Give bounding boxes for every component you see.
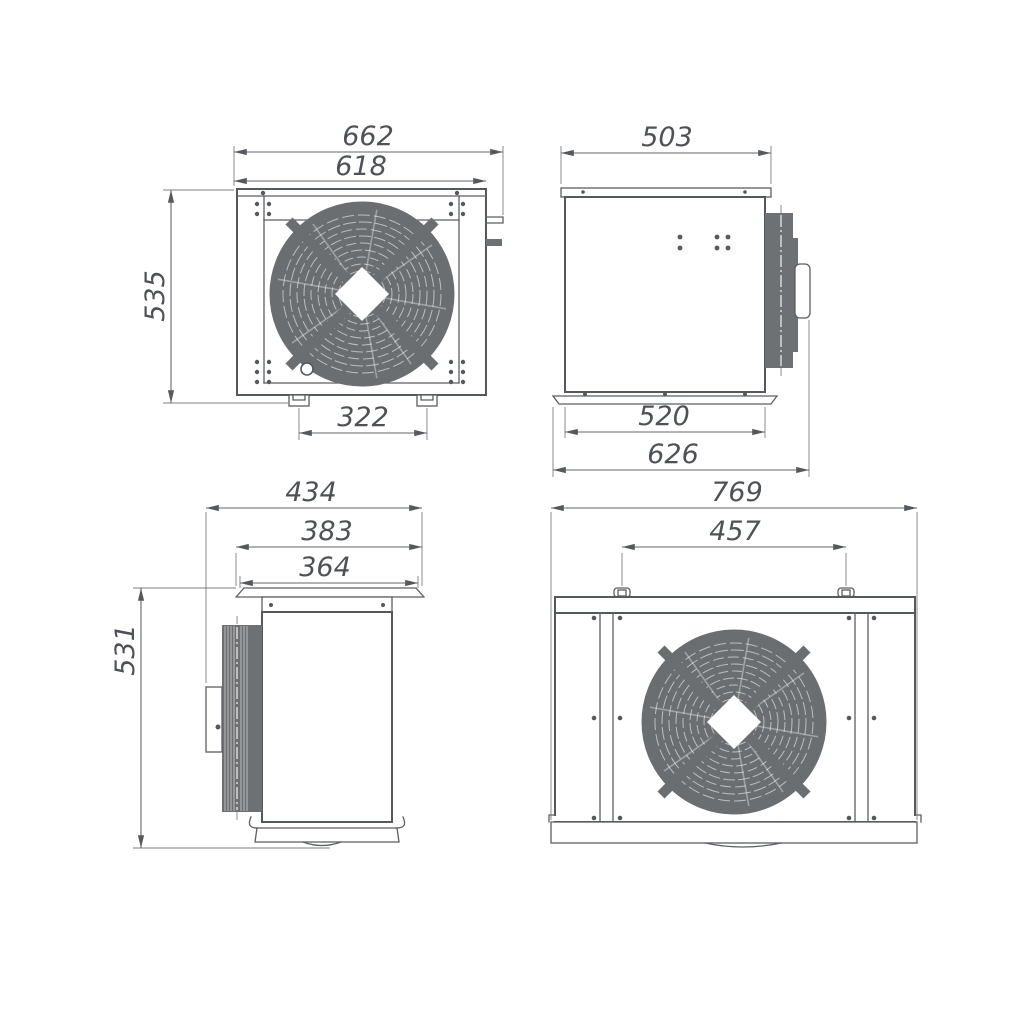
dim-rear-bracket-spacing: 457 (622, 516, 846, 586)
dim-left-top-plate-width: 364 (240, 552, 418, 588)
dim-front-overall-height: 535 (140, 190, 288, 403)
condenser-coil-side (765, 205, 810, 377)
side-view-right: 503 520 626 (553, 122, 810, 477)
side-right-housing (553, 188, 777, 404)
dim-label-side-top-width: 503 (641, 122, 693, 153)
dim-label-front-feet-spacing: 322 (337, 402, 389, 433)
fan-grille-rear (645, 633, 823, 811)
technical-drawing: 662 618 535 322 (0, 0, 1024, 1024)
dim-label-left-overall-height: 531 (110, 624, 141, 676)
dim-side-base-width: 520 (565, 401, 765, 438)
fan-grille-front (273, 205, 451, 383)
rear-view: 769 457 (549, 477, 921, 847)
front-view: 662 618 535 322 (140, 121, 503, 440)
side-left-housing (236, 588, 424, 822)
drawing-page: 662 618 535 322 (0, 0, 1024, 1024)
junction-box (206, 687, 222, 752)
dim-label-left-flange-width: 383 (301, 516, 353, 547)
dim-label-left-overall-depth: 434 (285, 477, 337, 508)
dim-label-rear-bracket-spacing: 457 (709, 516, 761, 547)
dim-front-feet-spacing: 322 (299, 402, 427, 440)
pipe-connections (486, 217, 503, 246)
side-right-panel-screws (678, 235, 731, 251)
dim-label-side-overall-depth: 626 (647, 439, 699, 470)
dim-label-front-overall-width: 662 (342, 121, 394, 152)
dim-label-front-overall-height: 535 (140, 270, 171, 322)
dim-label-rear-overall-width: 769 (711, 477, 763, 508)
side-view-left: 434 383 364 531 (110, 477, 424, 848)
dim-label-front-body-width: 618 (335, 151, 387, 182)
dim-label-left-top-plate-width: 364 (299, 552, 351, 583)
dim-label-side-base-width: 520 (638, 401, 690, 432)
condenser-coil-left (222, 616, 262, 820)
dim-side-top-width: 503 (561, 122, 771, 184)
drain-hole (301, 363, 313, 375)
dim-front-body-width: 618 (234, 151, 486, 182)
fan-guard-profile (795, 264, 810, 318)
